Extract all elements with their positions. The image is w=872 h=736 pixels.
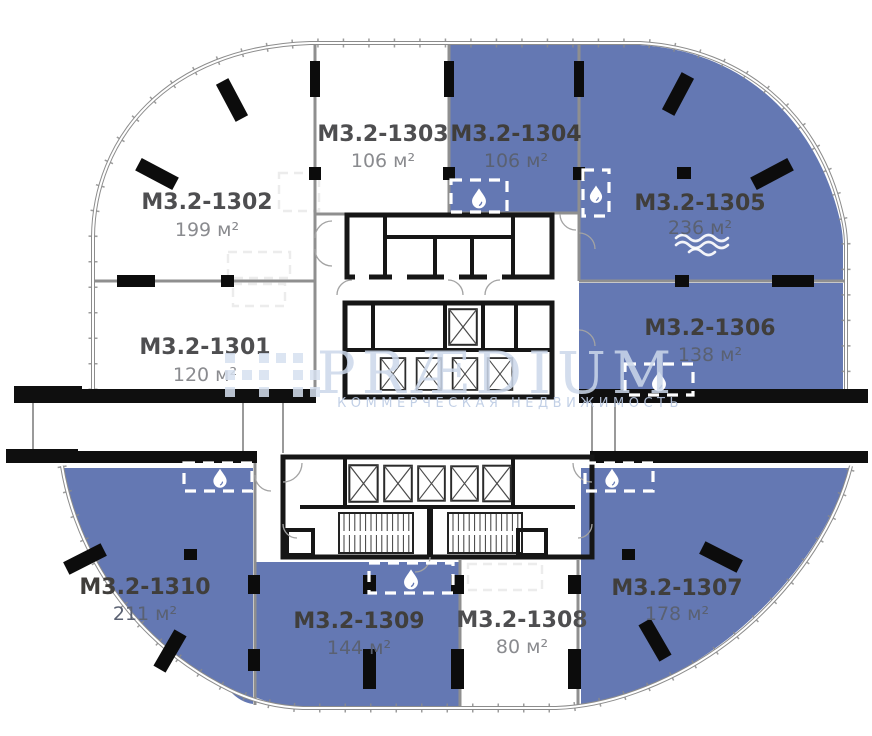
watermark-tagline: КОММЕРЧЕСКАЯ НЕДВИЖИМОСТЬ (337, 396, 683, 411)
unit-area-m3.2-1309: 144 м² (327, 637, 391, 659)
unit-label-m3.2-1307: М3.2-1307 (611, 576, 742, 601)
unit-label-m3.2-1306: М3.2-1306 (644, 316, 775, 341)
unit-label-m3.2-1305: М3.2-1305 (634, 191, 765, 216)
unit-area-m3.2-1304: 106 м² (484, 150, 548, 172)
unit-label-m3.2-1303: М3.2-1303 (317, 122, 448, 147)
unit-area-m3.2-1302: 199 м² (175, 219, 239, 241)
unit-m3.2-1309-region[interactable] (255, 562, 460, 707)
unit-area-m3.2-1306: 138 м² (678, 344, 742, 366)
unit-area-m3.2-1307: 178 м² (645, 603, 709, 625)
unit-label-m3.2-1302: М3.2-1302 (141, 190, 272, 215)
unit-label-m3.2-1308: М3.2-1308 (456, 608, 587, 633)
unit-area-m3.2-1310: 211 м² (113, 603, 177, 625)
unit-label-m3.2-1304: М3.2-1304 (450, 122, 581, 147)
unit-label-m3.2-1309: М3.2-1309 (293, 609, 424, 634)
unit-area-m3.2-1305: 236 м² (668, 217, 732, 239)
unit-area-m3.2-1303: 106 м² (351, 150, 415, 172)
unit-label-m3.2-1310: М3.2-1310 (79, 575, 210, 600)
unit-m3.2-1308-region[interactable] (462, 562, 576, 707)
unit-area-m3.2-1308: 80 м² (496, 636, 548, 658)
unit-label-m3.2-1301: М3.2-1301 (139, 335, 270, 360)
floor-plan-canvas: М3.2-1302 199 м² М3.2-1301 120 м² М3.2-1… (0, 0, 872, 736)
